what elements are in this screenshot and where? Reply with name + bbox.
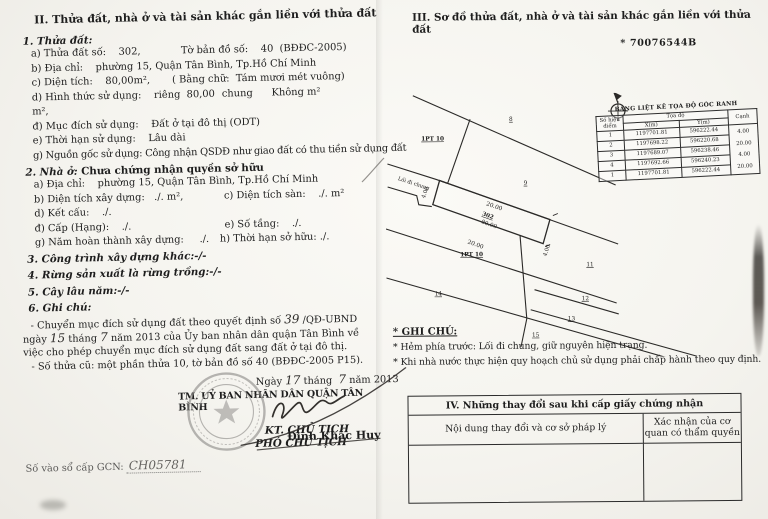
land-use-private: d) Hình thức sử dụng: riêng 80,00 m², (32, 87, 223, 120)
decision-day-handwritten: 15 (50, 331, 66, 345)
parcel-14-label: 14 (435, 292, 443, 298)
parcel-1pt10-upper-label: 1PT 10 (421, 136, 444, 142)
col-point-header: Số hiệu điểm (596, 115, 624, 132)
confirmation-empty-cell (643, 443, 741, 501)
book-value-handwritten: CH05781 (127, 457, 201, 474)
dim-top-label: 20.00 (485, 201, 503, 212)
y-value: 596222.44 (681, 165, 731, 177)
book-label: Số vào sổ cấp GCN: (26, 462, 127, 475)
confirmation-column-header: Xác nhận của cơ quan có thẩm quyền (643, 413, 741, 444)
certificate-serial: * 70076544B (620, 37, 697, 49)
edge-length: 20.00 (731, 163, 760, 171)
note-text: tháng (65, 333, 100, 345)
item-4-forest: 4. Rừng sản xuất là rừng trồng:-/- (27, 262, 387, 282)
scan-smudge-right (753, 224, 764, 356)
changes-empty-cell (409, 444, 644, 503)
edge-lengths: 4.00 20.00 4.00 20.00 (728, 124, 760, 175)
section-ii-page: II. Thửa đất, nhà ở và tài sản khác gắn … (10, 2, 392, 510)
house-floor-area: c) Diện tích sàn: ./. m² (224, 187, 345, 204)
x-value: 1197701.81 (626, 168, 682, 181)
sketch-notes: * GHI CHÚ: * Hẻm phía trước: Lối đi chun… (393, 324, 765, 368)
house-storeys: e) Số tầng: ./. (224, 216, 301, 232)
note-text: - Chuyển mục đích sử dụng đất theo quyết… (30, 315, 284, 331)
parcel-8-label: 8 (509, 117, 513, 123)
section-iii-title: III. Sơ đồ thửa đất, nhà ở và tài sản kh… (412, 9, 756, 36)
parcel-13-label: 13 (568, 316, 576, 322)
parcel-1pt10-lower-label: 1PT 10 (460, 252, 483, 258)
parcel-11-label: 11 (586, 262, 593, 268)
page-fold-shadow (376, 0, 383, 519)
house-heading-label: 2. Nhà ở: (25, 166, 77, 179)
land-use-shared: chung Không m² (222, 85, 321, 116)
parcel-12-label: 12 (582, 296, 590, 302)
stray-pen-mark (360, 156, 386, 186)
section-iv-table: IV. Những thay đổi sau khi cấp giấy chứn… (407, 393, 742, 504)
certificate-book-number: Số vào sổ cấp GCN: CH05781 (25, 457, 200, 475)
sketch-labels: 1PT 10 8 9 Lối đi chung 4.00 20.00 302 8… (396, 116, 594, 340)
decision-number-handwritten: 39 (284, 312, 300, 326)
section-ii-title: II. Thửa đất, nhà ở và tài sản khác gắn … (34, 6, 382, 26)
stamp-star-icon (213, 399, 239, 424)
col-edge-header: Cạnh (728, 108, 758, 125)
scanned-land-certificate: II. Thửa đất, nhà ở và tài sản khác gắn … (0, 0, 768, 519)
house-year: g) Năm hoàn thành xây dựng: ./. (35, 233, 220, 251)
section-iii-page: III. Sơ đồ thửa đất, nhà ở và tài sản kh… (384, 0, 768, 519)
dim-right-label: 4.00 (542, 243, 552, 257)
edge-length: 20.00 (730, 140, 759, 148)
coordinate-table: BẢNG LIỆT KÊ TỌA ĐỘ GÓC RANH Số hiệu điể… (595, 99, 761, 182)
signer-name: Đinh Khắc Huy (287, 428, 381, 443)
edge-length: 4.00 (730, 151, 759, 159)
sketch-notes-title: * GHI CHÚ: (393, 324, 765, 338)
parcel-302-area: 80.00 (480, 219, 498, 230)
parcel-9-label: 9 (524, 181, 528, 187)
sketch-note-line2: * Khi nhà nước thực hiện quy hoạch chủ s… (393, 354, 765, 368)
dim-bottom-label: 20.00 (466, 240, 484, 251)
scan-smudge-bottom (40, 500, 66, 510)
house-ownership-term: h) Thời hạn sở hữu: ./. (220, 230, 330, 247)
stamp-and-signature (143, 350, 415, 466)
sketch-note-line1: * Hẻm phía trước: Lối đi chung, giữ nguy… (393, 339, 765, 353)
edge-length: 4.00 (729, 128, 758, 136)
point-id: 1 (599, 170, 627, 181)
official-stamp-icon (188, 373, 266, 451)
changes-column-header: Nội dung thay đổi và cơ sở pháp lý (409, 414, 643, 446)
